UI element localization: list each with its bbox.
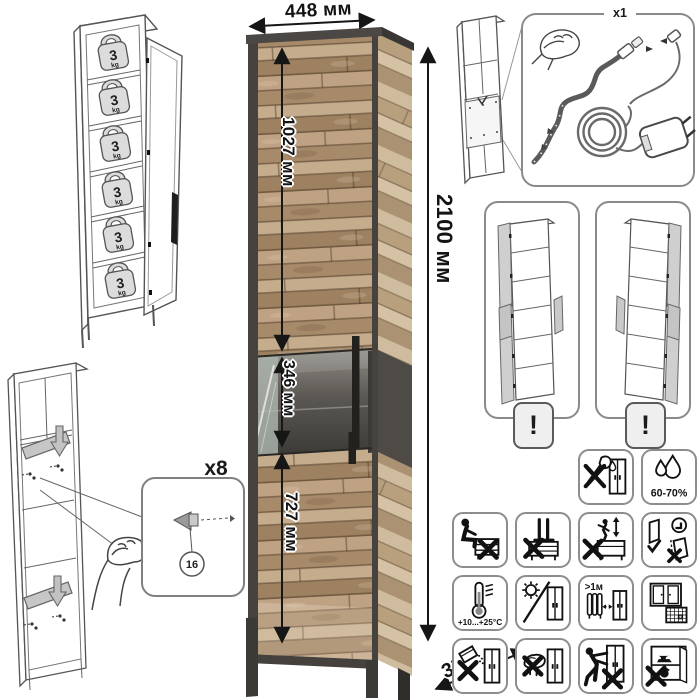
humidity-icon: 60-70% <box>641 449 697 505</box>
upper-door-dimension: 1027 мм <box>278 117 298 187</box>
calendar-glyph: 21 <box>666 608 686 623</box>
weight-unit: kg <box>111 61 120 69</box>
lower-door-handle <box>349 432 357 464</box>
hardware-callout: x8 16 <box>142 457 244 596</box>
led-kit-diagram: x1 <box>450 2 700 198</box>
no-abrasives-icon <box>452 638 508 694</box>
lower-door-dimension: 727 мм <box>281 492 301 552</box>
attention-badge: ! <box>513 402 554 449</box>
niche-side <box>616 296 625 334</box>
no-sitting-icon <box>452 512 508 568</box>
distance-value: >1м <box>585 582 603 593</box>
door-handle <box>171 192 178 245</box>
wardrobe-glyph <box>548 649 563 682</box>
door-adjustment-icon <box>641 512 697 568</box>
right-frame <box>372 34 378 661</box>
explode-line <box>502 26 522 100</box>
hand-with-pin <box>92 537 148 610</box>
cabinet-render <box>240 20 460 700</box>
wireframe-carcass <box>8 363 87 686</box>
side-glass-right <box>378 350 412 468</box>
no-standing-icon <box>515 512 571 568</box>
shelf-load-diagram: 3 kg 3 kg 3 kg 3 kg <box>36 2 200 354</box>
svg-text:kg: kg <box>115 198 124 206</box>
front-lower-band <box>250 602 378 660</box>
part-number: 16 <box>186 559 198 571</box>
svg-text:kg: kg <box>113 152 122 160</box>
svg-text:kg: kg <box>116 243 125 251</box>
upper-door-handle <box>352 336 360 448</box>
cabinet-back-view <box>457 16 504 183</box>
width-dimension: 448 мм <box>284 0 352 24</box>
height-dimension: 2100 мм <box>431 194 457 284</box>
no-dragging-icon <box>578 638 634 694</box>
no-wet-cloth-icon <box>515 638 571 694</box>
glass-section <box>250 346 412 468</box>
wardrobe-glyph <box>548 587 563 619</box>
lower-door-open <box>500 336 514 404</box>
no-heavy-objects-icon <box>641 638 697 694</box>
left-frame <box>248 42 258 655</box>
attention-badge: ! <box>625 402 666 449</box>
open-door <box>144 38 182 315</box>
shelf-assembly-diagram: x8 16 <box>0 348 250 700</box>
svg-text:kg: kg <box>112 106 121 114</box>
no-sharp-tools-icon <box>578 449 634 505</box>
lower-door-open <box>665 336 679 404</box>
temperature-value: +10...+25°C <box>458 617 502 627</box>
hex-key-glyph <box>675 522 681 528</box>
wardrobe-glyph <box>613 591 626 620</box>
humidity-value: 60-70% <box>651 487 688 499</box>
no-direct-sunlight-icon <box>515 575 571 631</box>
niche-side <box>554 296 563 334</box>
calendar-day: 21 <box>679 615 683 619</box>
kit-quantity: x1 <box>613 6 627 20</box>
ventilate-room-icon: 21 <box>641 575 697 631</box>
anvil-glyph <box>657 656 672 662</box>
no-climbing-icon <box>578 512 634 568</box>
heater-distance-icon: >1м <box>578 575 634 631</box>
temperature-range-icon: +10...+25°C <box>452 575 508 631</box>
glass-section-dimension: 346 мм <box>279 360 297 417</box>
svg-text:kg: kg <box>118 289 127 297</box>
explode-line <box>503 140 522 172</box>
fitting-quantity: x8 <box>204 457 228 480</box>
product-sheet: 3 kg 3 kg 3 kg 3 kg <box>0 0 700 700</box>
wardrobe-glyph <box>485 649 500 682</box>
radiator-glyph <box>588 594 602 619</box>
